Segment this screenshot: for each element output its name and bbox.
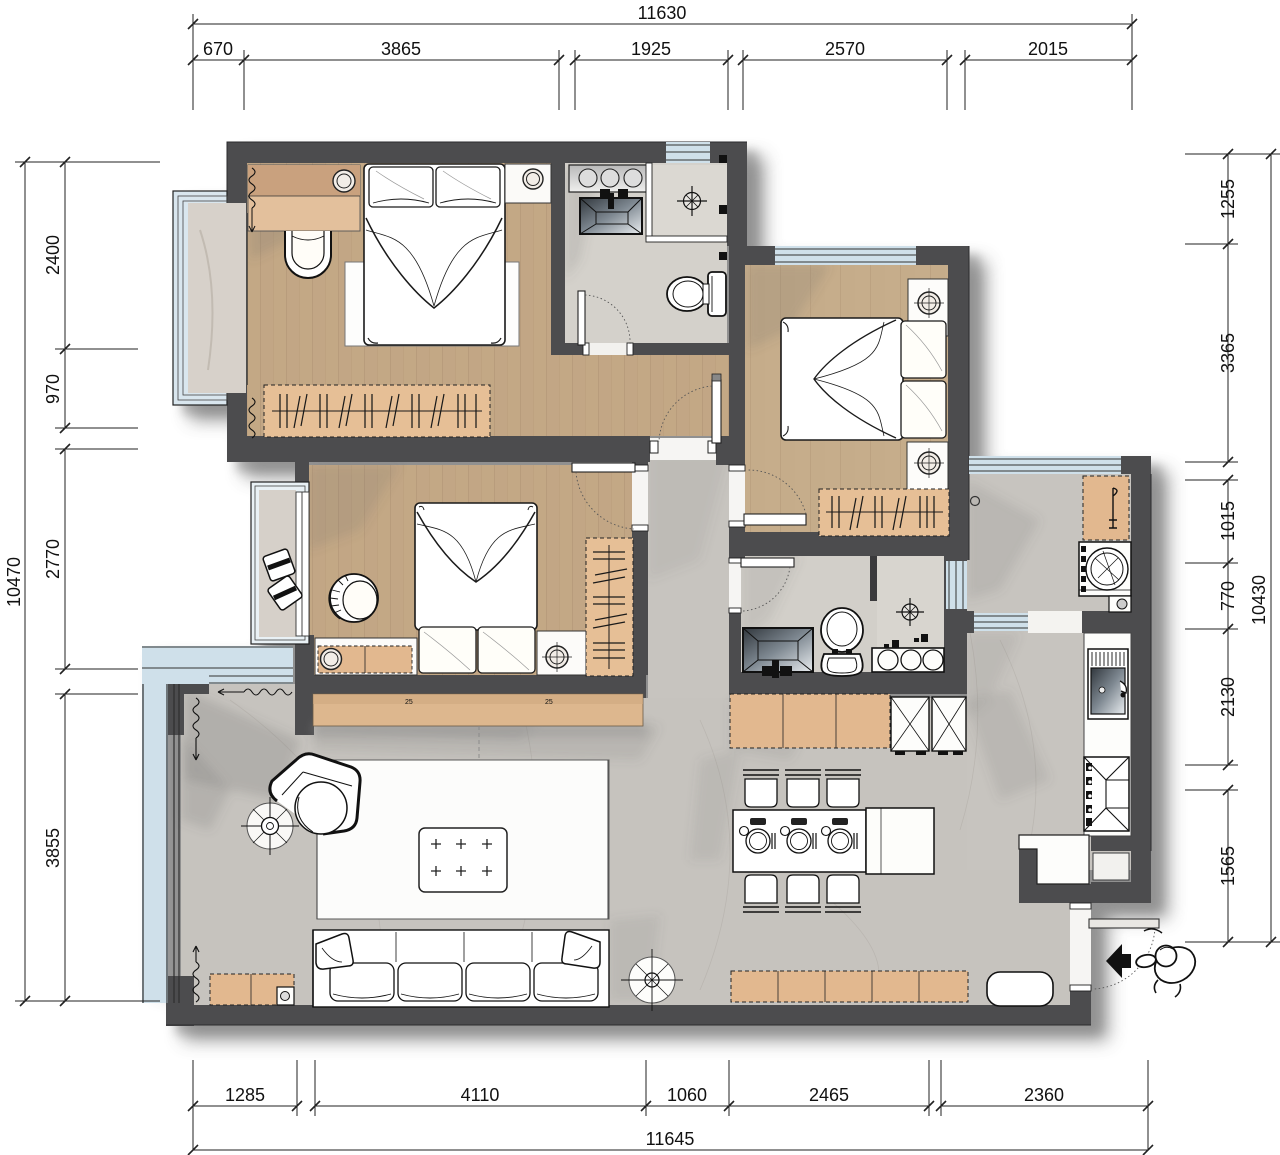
svg-text:1015: 1015 bbox=[1218, 501, 1238, 541]
svg-text:2015: 2015 bbox=[1028, 39, 1068, 59]
svg-text:670: 670 bbox=[203, 39, 233, 59]
svg-text:2770: 2770 bbox=[43, 539, 63, 579]
svg-text:770: 770 bbox=[1218, 581, 1238, 611]
svg-text:1060: 1060 bbox=[667, 1085, 707, 1105]
svg-text:2570: 2570 bbox=[825, 39, 865, 59]
svg-text:25: 25 bbox=[545, 699, 553, 706]
svg-text:1285: 1285 bbox=[225, 1085, 265, 1105]
svg-text:2400: 2400 bbox=[43, 235, 63, 275]
svg-text:1565: 1565 bbox=[1218, 846, 1238, 886]
svg-text:2360: 2360 bbox=[1024, 1085, 1064, 1105]
svg-text:25: 25 bbox=[405, 699, 413, 706]
svg-text:3365: 3365 bbox=[1218, 333, 1238, 373]
svg-text:3865: 3865 bbox=[381, 39, 421, 59]
svg-text:1925: 1925 bbox=[631, 39, 671, 59]
svg-text:2130: 2130 bbox=[1218, 677, 1238, 717]
svg-text:11645: 11645 bbox=[646, 1129, 695, 1149]
svg-text:11630: 11630 bbox=[638, 3, 687, 23]
svg-text:970: 970 bbox=[43, 374, 63, 404]
svg-text:3855: 3855 bbox=[43, 828, 63, 868]
svg-text:10430: 10430 bbox=[1249, 575, 1269, 625]
svg-text:10470: 10470 bbox=[4, 557, 24, 607]
svg-text:2465: 2465 bbox=[809, 1085, 849, 1105]
svg-text:4110: 4110 bbox=[461, 1085, 500, 1105]
svg-text:1255: 1255 bbox=[1218, 179, 1238, 219]
